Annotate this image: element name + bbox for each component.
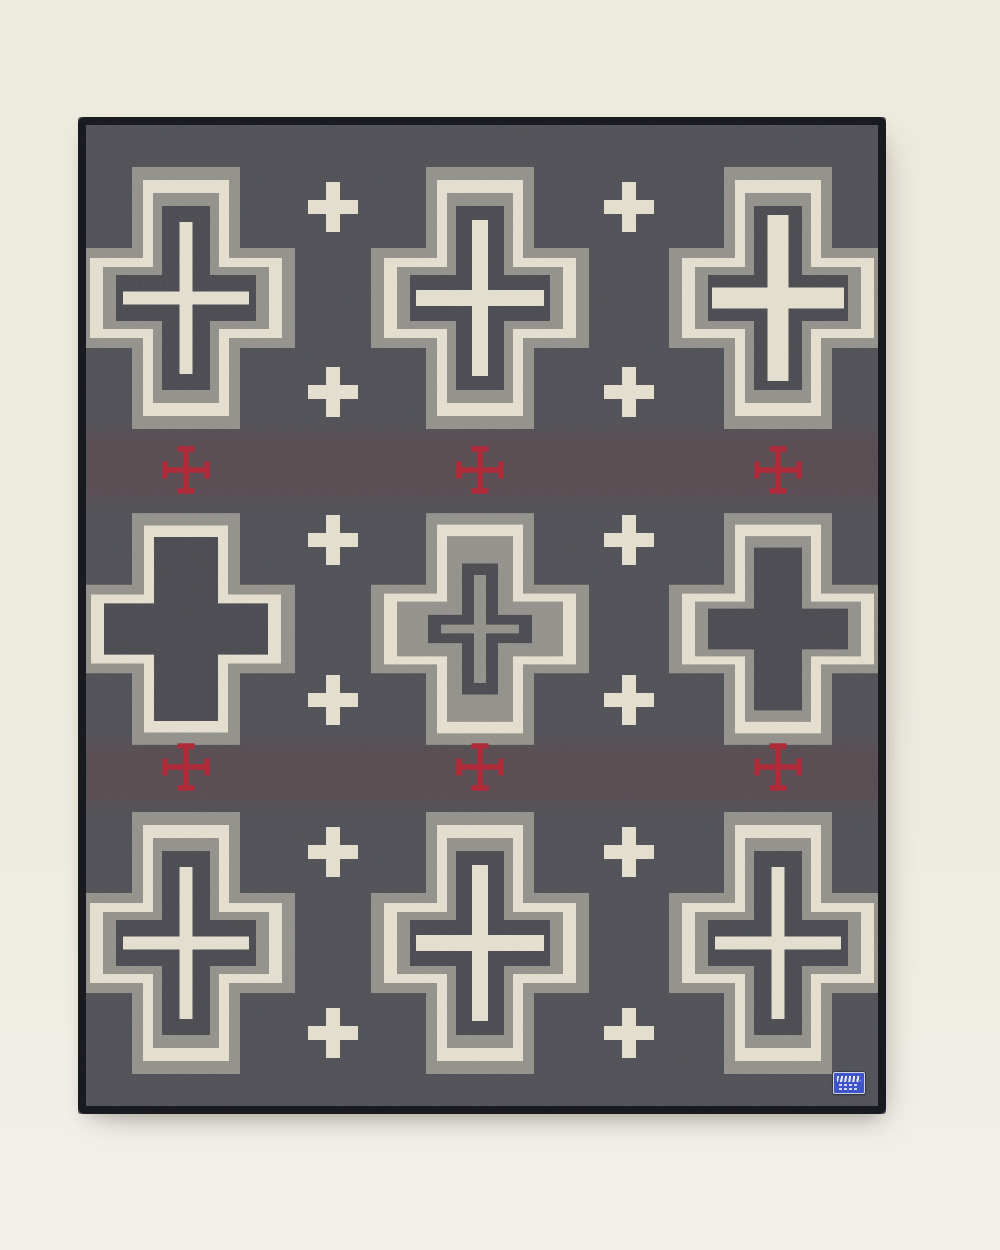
blanket-pattern-svg xyxy=(78,117,886,1114)
label-text-line xyxy=(839,1088,859,1090)
fabric-texture xyxy=(78,117,886,1114)
pendleton-brand-label xyxy=(833,1072,865,1094)
blanket xyxy=(78,117,886,1114)
label-text-line xyxy=(839,1084,859,1086)
product-photo-scene xyxy=(0,0,1000,1250)
label-script-text xyxy=(837,1076,861,1082)
